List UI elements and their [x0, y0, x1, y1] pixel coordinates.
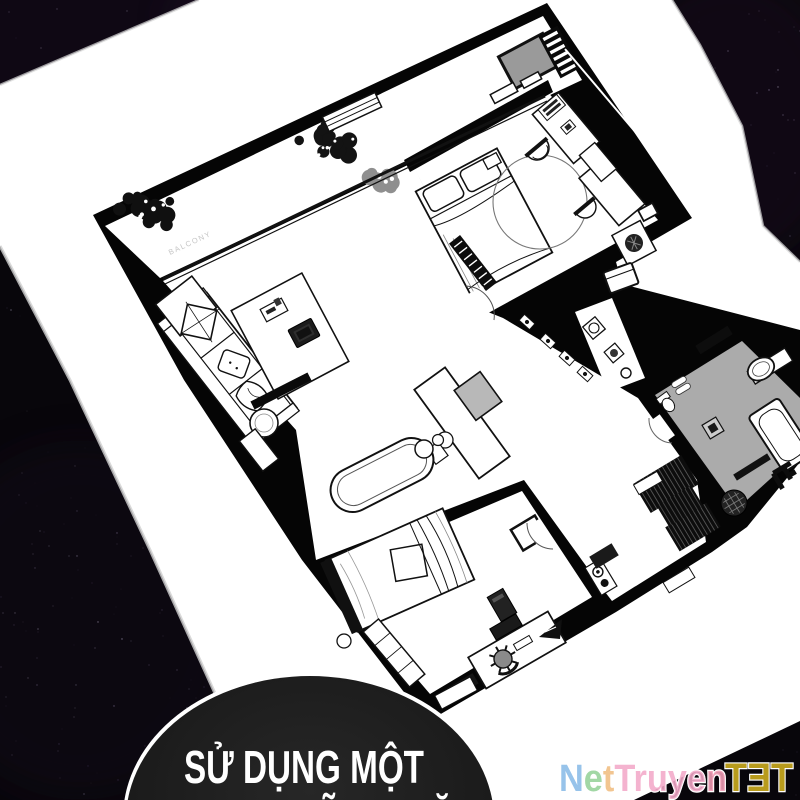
svg-text:TRONG NHỮNG CĂN: TRONG NHỮNG CĂN	[135, 792, 479, 800]
svg-text:TƎT: TƎT	[725, 756, 793, 800]
svg-text:NetTruyen: NetTruyen	[559, 758, 727, 800]
svg-text:SỬ DỤNG MỘT: SỬ DỤNG MỘT	[184, 741, 424, 793]
